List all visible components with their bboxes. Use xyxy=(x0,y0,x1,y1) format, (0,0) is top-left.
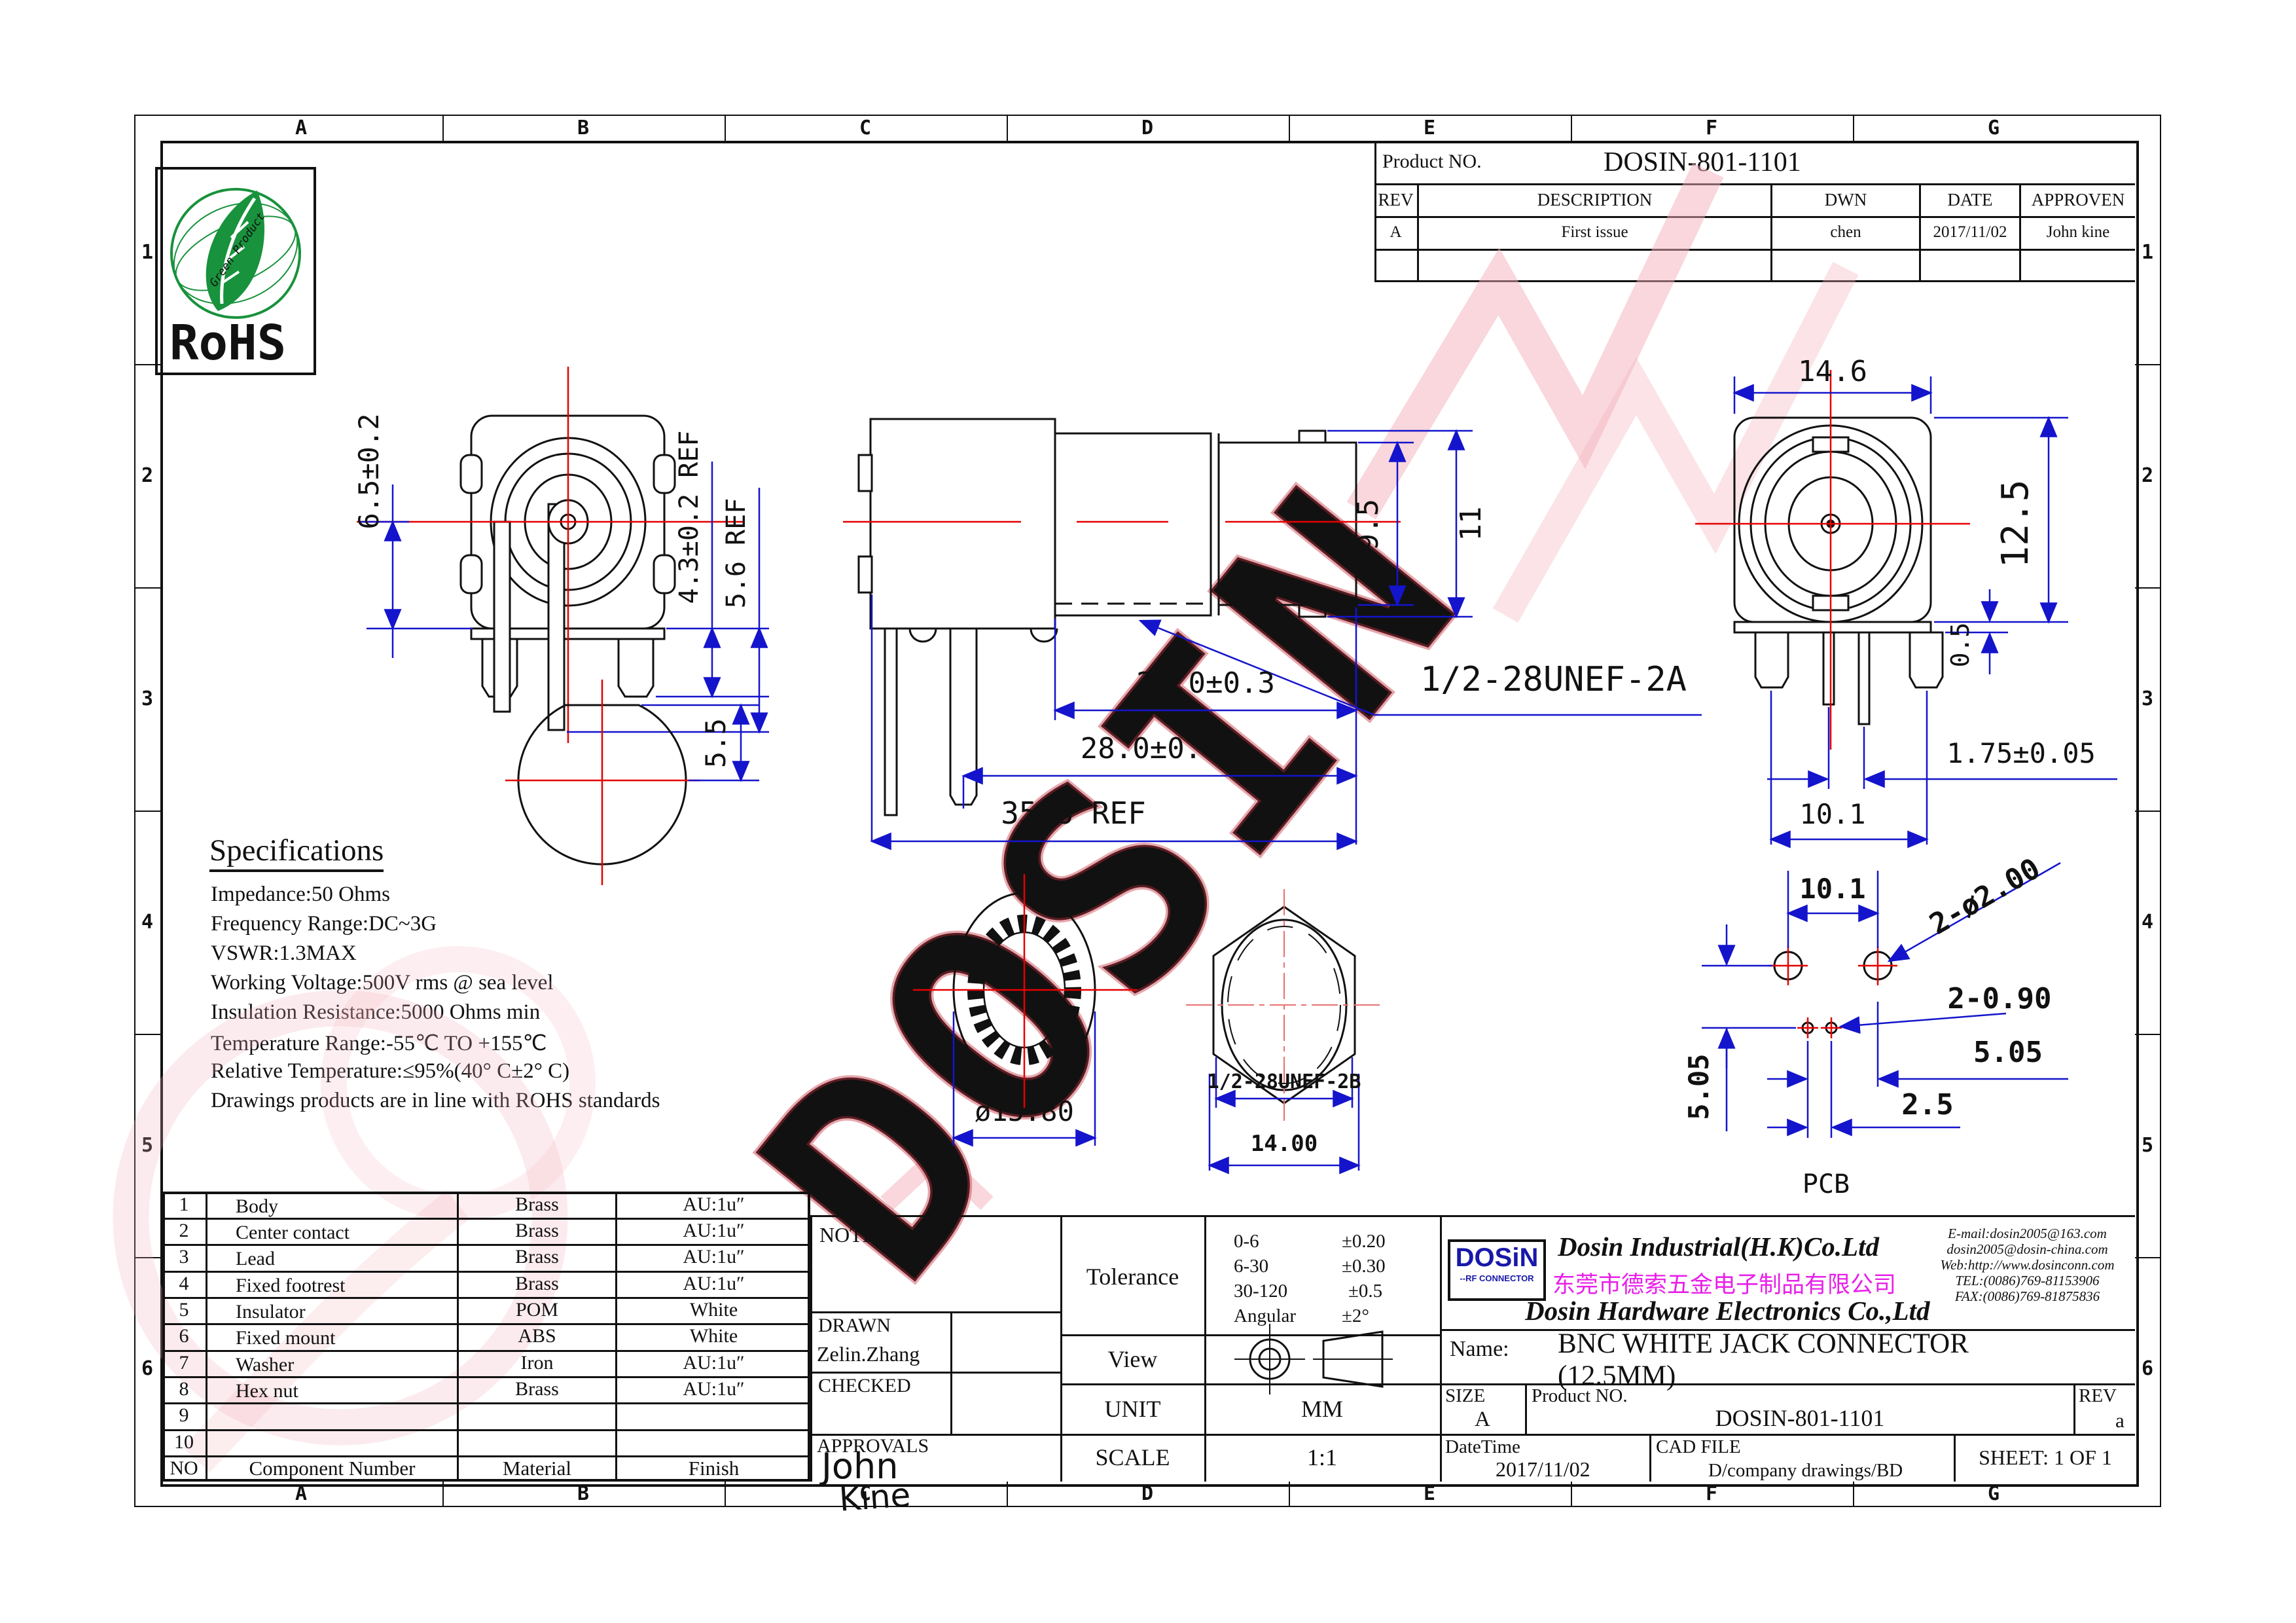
dim-5-05-h: 5.05 xyxy=(1973,1036,2043,1069)
drawn-label: DRAWN xyxy=(818,1315,891,1337)
bom-comp-7: Washer xyxy=(236,1354,294,1376)
dosin-logo-text: DOSiN xyxy=(1450,1242,1543,1273)
datetime-value: 2017/11/02 xyxy=(1496,1457,1590,1482)
dim-6-5: 6.5±0.2 xyxy=(353,413,385,529)
size-value: A xyxy=(1440,1406,1525,1432)
unit-value: MM xyxy=(1244,1396,1401,1422)
bom-fin-4: AU:1u″ xyxy=(617,1271,810,1297)
dim-10-1-back: 10.1 xyxy=(1799,798,1865,830)
dim-dia-9-5: ø9.5 xyxy=(1352,499,1385,568)
bom-comp-4: Fixed footrest xyxy=(236,1275,345,1297)
bom-mat-3: Brass xyxy=(459,1244,615,1270)
company-name-en1: Dosin Industrial(H.K)Co.Ltd xyxy=(1558,1231,1879,1262)
bottom-circle-dimensions: 5.5 xyxy=(641,705,759,780)
unit-label: UNIT xyxy=(1062,1396,1203,1422)
view-label: View xyxy=(1062,1346,1203,1372)
bom-fin-2: AU:1u″ xyxy=(617,1218,810,1244)
dim-2-5: 2.5 xyxy=(1901,1088,1953,1122)
bom-no-3: 3 xyxy=(162,1244,206,1270)
dim-2-0-90: 2-0.90 xyxy=(1948,982,2052,1015)
tolerance-label: Tolerance xyxy=(1062,1264,1203,1290)
company-contact-web: Web:http://www.dosinconn.com xyxy=(1924,1257,2130,1273)
bom-fin-1: AU:1u″ xyxy=(617,1192,810,1218)
dim-5-6-ref: 5.6 REF xyxy=(721,498,751,609)
dim-2-dia-2: 2-ø2.00 xyxy=(1924,852,2046,941)
bom-fin-6: White xyxy=(617,1323,810,1349)
svg-text:DOSIN: DOSIN xyxy=(701,428,1526,1339)
tol-range-1: 0-6 xyxy=(1234,1231,1259,1252)
label-thread-2b: 1/2-28UNEF-2B xyxy=(1208,1070,1361,1093)
company-contact-email2: dosin2005@dosin-china.com xyxy=(1924,1241,2130,1258)
bom-mat-2: Brass xyxy=(459,1218,615,1244)
pcb-label: PCB xyxy=(1803,1169,1850,1199)
watermark-dosin: DOSIN xyxy=(701,428,1526,1339)
back-view xyxy=(1734,418,1943,724)
company-name-en2: Dosin Hardware Electronics Co.,Ltd xyxy=(1525,1295,1929,1326)
size-label: SIZE xyxy=(1445,1385,1485,1407)
dim-28-0: 28.0±0.40 xyxy=(1081,732,1236,765)
bom-footer-finish: Finish xyxy=(617,1455,810,1482)
label-thread-2a: 1/2-28UNEF-2A xyxy=(1420,660,1687,699)
bom-comp-5: Insulator xyxy=(236,1301,306,1323)
tol-val-1: ±0.20 xyxy=(1342,1231,1386,1252)
drawing-sheet: A B C D E F G A B C D E F G 1 2 3 4 5 6 … xyxy=(0,0,2296,1623)
bom-mat-1: Brass xyxy=(459,1192,615,1218)
dim-14-00: 14.00 xyxy=(1251,1131,1318,1157)
company-contact-fax: FAX:(0086)769-81875836 xyxy=(1924,1288,2130,1305)
pcb-dimensions: 10.1 2-ø2.00 2-0.90 5.05 5.05 2.5 xyxy=(1683,852,2068,1138)
bom-fin-3: AU:1u″ xyxy=(617,1244,810,1270)
dim-1-75: 1.75±0.05 xyxy=(1946,737,2096,769)
pcb-view xyxy=(1774,952,1892,1033)
tol-range-2: 6-30 xyxy=(1234,1256,1268,1277)
bom-no-8: 8 xyxy=(162,1376,206,1402)
bom-no-6: 6 xyxy=(162,1323,206,1349)
bom-mat-8: Brass xyxy=(459,1376,615,1402)
dim-10-1-pcb: 10.1 xyxy=(1799,873,1865,905)
dim-12-5: 12.5 xyxy=(1994,480,2037,568)
dim-5-05-v: 5.05 xyxy=(1683,1053,1715,1120)
tol-range-3: 30-120 xyxy=(1234,1281,1287,1302)
dim-35-6: 35.6 REF xyxy=(1001,795,1146,831)
rev-value: a xyxy=(2115,1409,2125,1432)
bom-mat-6: ABS xyxy=(459,1323,615,1349)
tol-val-3: ±0.5 xyxy=(1348,1281,1382,1302)
bom-no-10: 10 xyxy=(162,1429,206,1455)
datetime-label: DateTime xyxy=(1445,1436,1520,1458)
dim-5-5: 5.5 xyxy=(700,718,732,768)
tol-val-2: ±0.30 xyxy=(1342,1256,1386,1277)
bom-comp-3: Lead xyxy=(236,1248,275,1270)
bom-comp-6: Fixed mount xyxy=(236,1327,336,1349)
scale-label: SCALE xyxy=(1062,1444,1203,1470)
tol-range-4: Angular xyxy=(1234,1305,1296,1327)
bom-footer-material: Material xyxy=(459,1455,615,1482)
bom-no-1: 1 xyxy=(162,1192,206,1218)
dim-4-3-ref: 4.3±0.2 REF xyxy=(674,431,704,604)
bom-no-5: 5 xyxy=(162,1297,206,1323)
company-contact-email1: E-mail:dosin2005@163.com xyxy=(1924,1226,2130,1242)
bom-comp-8: Hex nut xyxy=(236,1380,298,1402)
rev-label: REV xyxy=(2079,1385,2117,1407)
approvals-signature-2: Kine xyxy=(838,1476,912,1518)
bom-footer-no: NO xyxy=(162,1455,206,1482)
bom-no-7: 7 xyxy=(162,1350,206,1376)
bom-no-2: 2 xyxy=(162,1218,206,1244)
bom-fin-7: AU:1u″ xyxy=(617,1350,810,1376)
bom-mat-5: POM xyxy=(459,1297,615,1323)
name-label: Name: xyxy=(1450,1337,1509,1362)
checked-label: CHECKED xyxy=(818,1375,911,1397)
dosin-logo: DOSiN --RF CONNECTOR xyxy=(1448,1239,1546,1301)
bom-fin-5: White xyxy=(617,1297,810,1323)
bom-comp-2: Center contact xyxy=(236,1222,350,1244)
cad-file-value: D/company drawings/BD xyxy=(1708,1460,1903,1482)
sheet-label: SHEET: 1 OF 1 xyxy=(1957,1444,2134,1470)
dim-14-6: 14.6 xyxy=(1798,355,1867,388)
note-label: NOTE: xyxy=(819,1223,881,1247)
bom-fin-8: AU:1u″ xyxy=(617,1376,810,1402)
cad-file-label: CAD FILE xyxy=(1656,1436,1741,1458)
company-contact-tel: TEL:(0086)769-81153906 xyxy=(1924,1273,2130,1289)
scale-value: 1:1 xyxy=(1244,1444,1401,1470)
bom-footer-component: Component Number xyxy=(207,1455,457,1482)
size-product-no-value: DOSIN-801-1101 xyxy=(1590,1405,2009,1431)
drawn-name: Zelin.Zhang xyxy=(817,1342,920,1366)
bom-mat-4: Brass xyxy=(459,1271,615,1297)
dim-11: 11 xyxy=(1454,507,1488,541)
dim-21-0: 21.0±0.3 xyxy=(1136,666,1275,700)
name-value: BNC WHITE JACK CONNECTOR (12.5MM) xyxy=(1558,1343,2081,1376)
bom-no-9: 9 xyxy=(162,1402,206,1429)
bom-no-4: 4 xyxy=(162,1271,206,1297)
tol-val-4: ±2° xyxy=(1342,1305,1369,1327)
dim-0-5: 0.5 xyxy=(1946,623,1975,668)
dosin-logo-subtext: --RF CONNECTOR xyxy=(1450,1273,1543,1283)
bom-comp-1: Body xyxy=(236,1195,278,1218)
bom-mat-7: Iron xyxy=(459,1350,615,1376)
dim-dia-15-80: ø15.80 xyxy=(975,1095,1074,1127)
size-product-no-label: Product NO. xyxy=(1532,1385,1628,1407)
bottom-circle-centerlines xyxy=(505,680,700,885)
